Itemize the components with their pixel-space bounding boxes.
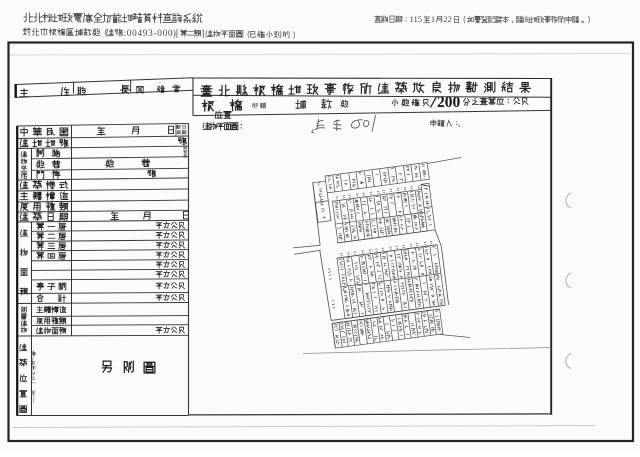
svg-text:115: 115: [410, 14, 423, 24]
svg-text:]: ]: [202, 28, 205, 38]
svg-text:1: 1: [431, 14, 435, 24]
svg-text::00493-000: :00493-000: [124, 28, 173, 38]
svg-text:)[: )[: [173, 28, 179, 38]
svg-text:22: 22: [443, 14, 452, 24]
svg-text:200: 200: [437, 94, 461, 111]
